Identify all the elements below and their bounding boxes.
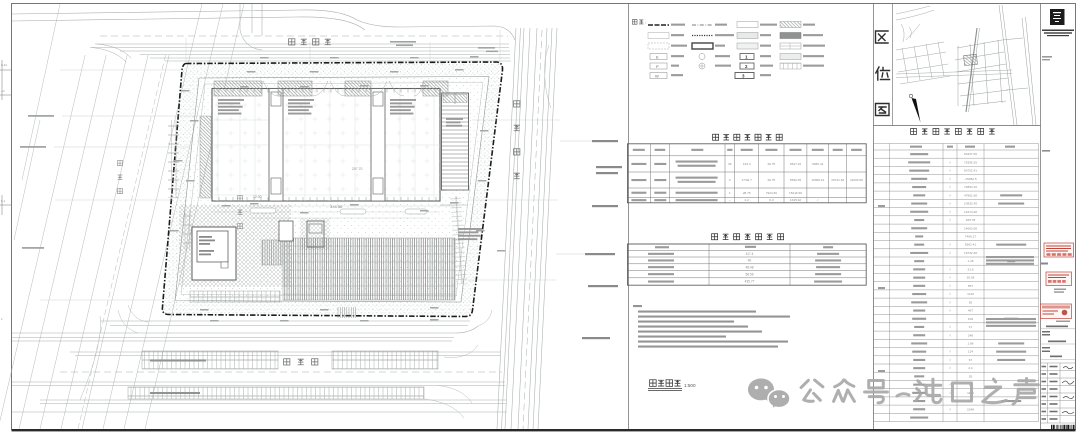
svg-text:--: -- (729, 198, 731, 202)
svg-text:P: P (656, 64, 659, 69)
svg-text:63437.06: 63437.06 (964, 152, 977, 156)
svg-text:50: 50 (969, 300, 973, 304)
svg-text:248: 248 (968, 333, 973, 337)
svg-text:28.75: 28.75 (768, 178, 776, 182)
svg-text:√: √ (949, 160, 951, 164)
svg-text:6561.41: 6561.41 (965, 243, 976, 247)
svg-text:47861.68: 47861.68 (964, 193, 977, 197)
svg-text:√: √ (949, 243, 951, 247)
svg-text:√: √ (949, 333, 951, 337)
svg-text:7924.36: 7924.36 (766, 191, 777, 195)
svg-text:√: √ (949, 383, 951, 387)
svg-text:1:500: 1:500 (684, 383, 696, 388)
svg-text:31.6: 31.6 (967, 267, 973, 271)
svg-text:74864.16: 74864.16 (964, 185, 977, 189)
svg-text:√: √ (949, 193, 951, 197)
svg-text:K-1: K-1 (1, 199, 6, 203)
svg-text:4.2: 4.2 (745, 198, 750, 202)
svg-text:457: 457 (968, 309, 973, 313)
svg-text:12.00: 12.00 (253, 195, 262, 199)
svg-text:1.86: 1.86 (967, 342, 973, 346)
svg-text:28.75: 28.75 (743, 191, 751, 195)
svg-text:3×4.50: 3×4.50 (330, 204, 343, 209)
svg-text:√: √ (949, 210, 951, 214)
svg-text:19732.48: 19732.48 (964, 251, 977, 255)
svg-text:/: / (817, 198, 818, 202)
svg-text:17: 17 (969, 325, 973, 329)
svg-text:435.77: 435.77 (745, 280, 755, 284)
svg-text::: : (645, 20, 646, 25)
svg-text:G-01: G-01 (1, 63, 7, 67)
svg-text:5982.41: 5982.41 (812, 162, 823, 166)
svg-text:√: √ (949, 185, 951, 189)
svg-text:17/32.7: 17/32.7 (742, 178, 753, 182)
svg-text:207.70: 207.70 (352, 167, 362, 171)
svg-text:√: √ (949, 276, 951, 280)
svg-text:2: 2 (729, 178, 731, 182)
svg-text:26: 26 (728, 162, 732, 166)
svg-text:√: √ (949, 391, 951, 395)
svg-text:√: √ (949, 407, 951, 411)
svg-text:465.78: 465.78 (966, 218, 976, 222)
svg-text:35: 35 (969, 374, 973, 378)
svg-text:2.4: 2.4 (968, 366, 973, 370)
svg-text:W: W (655, 73, 659, 78)
svg-text:√: √ (949, 267, 951, 271)
svg-text:√: √ (949, 325, 951, 329)
svg-text:20.05: 20.05 (967, 276, 975, 280)
svg-text:√: √ (949, 309, 951, 313)
svg-text:67: 67 (969, 358, 973, 362)
svg-text:1140: 1140 (967, 292, 974, 296)
svg-text:1645.92: 1645.92 (790, 198, 801, 202)
svg-text:7466.17: 7466.17 (965, 235, 976, 239)
svg-text:58.56: 58.56 (746, 272, 754, 276)
svg-text:15216.96: 15216.96 (789, 191, 802, 195)
svg-text:5590.35: 5590.35 (790, 178, 801, 182)
svg-text:√: √ (949, 366, 951, 370)
svg-text:117.4: 117.4 (746, 252, 754, 256)
svg-text:11000.66: 11000.66 (850, 178, 863, 182)
svg-text:12274.28: 12274.28 (964, 210, 977, 214)
svg-text:14653.08: 14653.08 (964, 226, 977, 230)
svg-text:75395.35: 75395.35 (964, 160, 977, 164)
svg-text:5647.16: 5647.16 (790, 162, 801, 166)
svg-text:√: √ (949, 350, 951, 354)
svg-text:124: 124 (968, 350, 973, 354)
svg-text:√: √ (949, 169, 951, 173)
svg-text:√: √ (949, 218, 951, 222)
svg-text:100: 100 (968, 317, 973, 321)
svg-text:-15062.5: -15062.5 (964, 177, 976, 181)
svg-text:√: √ (949, 358, 951, 362)
svg-text:√: √ (949, 251, 951, 255)
svg-text:√: √ (949, 177, 951, 181)
svg-text:2248: 2248 (967, 407, 974, 411)
svg-text:1.18: 1.18 (967, 259, 973, 263)
svg-text:10386.41: 10386.41 (811, 178, 824, 182)
svg-text:557: 557 (968, 284, 973, 288)
svg-text:60752.41: 60752.41 (964, 169, 977, 173)
svg-text:√: √ (949, 300, 951, 304)
svg-text:√: √ (949, 202, 951, 206)
svg-text:√: √ (949, 284, 951, 288)
svg-text:1: 1 (729, 191, 731, 195)
svg-text:J-2: J-2 (1, 89, 5, 93)
svg-text:20741.53: 20741.53 (831, 178, 844, 182)
svg-text:123.4: 123.4 (743, 162, 751, 166)
svg-text:E: E (656, 54, 659, 59)
svg-text:6.0: 6.0 (769, 198, 774, 202)
svg-text:√: √ (949, 292, 951, 296)
svg-text:10932.45: 10932.45 (964, 202, 977, 206)
svg-text:48.48: 48.48 (746, 265, 754, 269)
svg-text:40: 40 (748, 259, 752, 263)
svg-text:28.75: 28.75 (768, 162, 776, 166)
